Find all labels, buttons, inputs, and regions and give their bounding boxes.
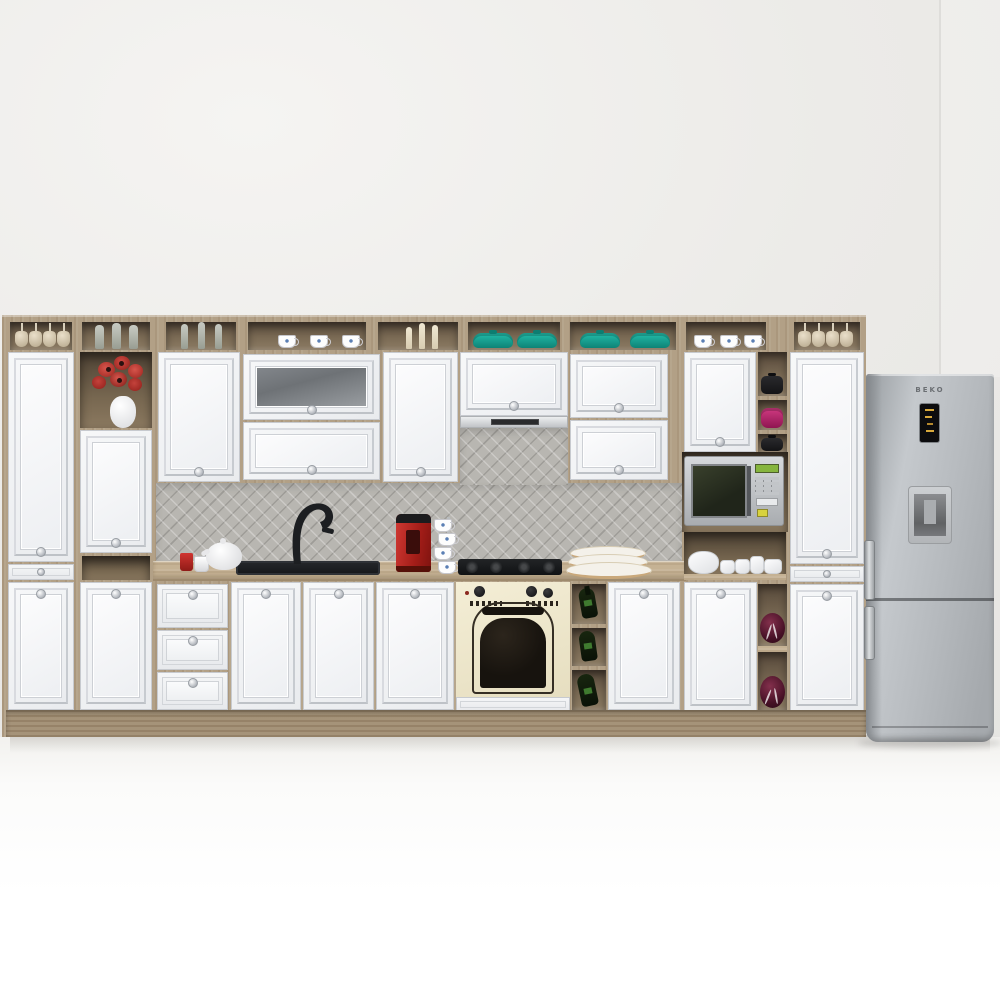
door-knob xyxy=(334,589,344,599)
door-knob xyxy=(822,549,832,559)
upper-cabinet-door xyxy=(684,352,756,452)
oven-indicator xyxy=(465,591,469,595)
drawer-front xyxy=(8,564,74,580)
drawer-knob xyxy=(823,570,831,578)
faucet xyxy=(284,498,340,566)
black-pot-icon xyxy=(761,376,783,394)
wine-glass-icon xyxy=(840,323,853,347)
drawer-knob xyxy=(188,678,198,688)
microwave-door-window xyxy=(691,464,747,518)
door-knob xyxy=(111,538,121,548)
floor-shadow xyxy=(10,735,990,753)
wine-cubby xyxy=(572,584,606,624)
oven-door-glass xyxy=(480,618,546,688)
upper-cabinet-door xyxy=(158,352,240,482)
teal-pot-icon xyxy=(517,333,557,348)
base-cabinet-door xyxy=(790,584,864,712)
door-knob xyxy=(822,591,832,601)
sugar-bowl-icon xyxy=(720,560,735,574)
fridge-display xyxy=(920,404,939,442)
candle-icon xyxy=(406,327,412,349)
magenta-pot-icon xyxy=(761,408,783,428)
kitchen-render: BEKO xyxy=(0,0,1000,1000)
freezer-handle xyxy=(864,606,875,660)
door-knob xyxy=(639,589,649,599)
niche-shelf-board xyxy=(684,574,786,580)
teapot-icon xyxy=(688,551,719,574)
oven-knob xyxy=(526,586,537,597)
teal-pot-icon xyxy=(473,333,513,348)
door-knob xyxy=(194,467,204,477)
shelf-box-candles xyxy=(378,322,458,350)
door-knob xyxy=(715,437,725,447)
wine-glass-icon xyxy=(29,323,42,347)
milk-jug-icon xyxy=(750,556,764,574)
base-cabinet-door xyxy=(8,582,74,710)
tea-set-niche xyxy=(684,532,786,580)
drawer-front xyxy=(157,672,228,710)
champagne-flute-icon xyxy=(198,322,205,349)
plate-stack xyxy=(566,544,650,576)
wine-glass-icon xyxy=(57,323,70,347)
open-shelf-pot xyxy=(758,400,787,430)
toe-kick xyxy=(6,710,866,737)
glass-tumbler-icon xyxy=(112,323,121,349)
upper-flip-door xyxy=(570,354,668,418)
floor xyxy=(0,737,1000,1000)
ornament-shelf xyxy=(758,584,787,646)
ornament-shelf xyxy=(758,652,787,710)
fridge-bottom-line xyxy=(872,726,988,728)
wine-glass-icon xyxy=(826,323,839,347)
door-knob xyxy=(36,547,46,557)
microwave-display xyxy=(755,464,779,473)
black-pot-icon xyxy=(761,438,783,451)
shelf-box-hanging-glasses-left xyxy=(10,322,72,350)
tea-cup-icon xyxy=(720,335,738,348)
microwave-niche xyxy=(682,452,788,532)
open-shelf-pot xyxy=(758,434,787,452)
gas-hob xyxy=(458,559,562,575)
tea-cup-icon xyxy=(764,559,782,574)
base-cabinet-door xyxy=(231,582,301,710)
fridge-freezer-split xyxy=(866,598,994,601)
wine-glass-icon xyxy=(798,323,811,347)
fridge-brand-logo: BEKO xyxy=(866,386,994,394)
hob-upper-flip-door xyxy=(460,352,568,416)
drawer-front xyxy=(157,630,228,670)
base-cabinet-door xyxy=(608,582,680,710)
microwave xyxy=(684,456,784,526)
sugar-bowl-icon xyxy=(735,559,750,574)
flower-niche xyxy=(80,352,152,428)
champagne-flute-icon xyxy=(215,324,222,349)
door-knob xyxy=(410,589,420,599)
teal-pot-icon xyxy=(630,333,670,348)
drawer-knob xyxy=(188,590,198,600)
tall-cabinet-door xyxy=(790,352,864,564)
oven-door-handle xyxy=(482,607,544,615)
door-knob xyxy=(307,465,317,475)
base-cabinet-door xyxy=(684,582,757,712)
shelf-box-flutes xyxy=(166,322,236,350)
fridge: BEKO xyxy=(866,374,994,742)
door-knob xyxy=(36,589,46,599)
coffee-machine xyxy=(396,514,431,572)
stacked-cup xyxy=(434,519,452,532)
fridge-handle xyxy=(864,540,875,600)
teapot xyxy=(206,542,242,570)
wine-cubby xyxy=(572,628,606,666)
upper-flip-door xyxy=(570,420,668,480)
door-knob xyxy=(614,403,624,413)
glass-tumbler-icon xyxy=(129,325,138,349)
wine-glass-icon xyxy=(812,323,825,347)
base-cabinet-door xyxy=(303,582,374,710)
wine-glass-icon xyxy=(43,323,56,347)
wine-rack xyxy=(572,582,606,712)
shelf-box-teal-pots-2 xyxy=(570,322,676,350)
base-cabinet-door xyxy=(80,582,152,710)
door-knob xyxy=(716,589,726,599)
open-shelf-pot xyxy=(758,352,787,396)
shelf-box-tumblers xyxy=(82,322,150,350)
drawer-knob xyxy=(188,636,198,646)
shelf-box-teacups-left xyxy=(248,322,366,350)
stacked-cup xyxy=(434,547,452,560)
water-dispenser xyxy=(908,486,952,544)
upper-cabinet-door xyxy=(383,352,458,482)
champagne-flute-icon xyxy=(181,324,188,349)
wine-cubby xyxy=(572,670,606,710)
drawer-front xyxy=(157,584,228,628)
door-knob xyxy=(509,401,519,411)
tall-cabinet-door xyxy=(8,352,74,562)
range-hood xyxy=(460,416,568,428)
wall-corner-right xyxy=(941,0,1000,377)
drawer-front xyxy=(790,566,864,582)
stacked-cup xyxy=(438,533,456,546)
door-knob xyxy=(307,405,317,415)
tea-cup-icon xyxy=(694,335,712,348)
oven-knob xyxy=(543,588,553,598)
open-slot xyxy=(82,556,150,580)
microwave-start-button xyxy=(757,509,768,517)
tea-cup-icon xyxy=(310,335,328,348)
oven xyxy=(456,582,570,712)
microwave-keypad xyxy=(755,477,779,495)
tea-cup-icon xyxy=(744,335,762,348)
teal-pot-icon xyxy=(580,333,620,348)
microwave-button xyxy=(756,498,778,506)
wine-glass-icon xyxy=(15,323,28,347)
door-knob xyxy=(261,589,271,599)
candle-icon xyxy=(419,323,425,349)
fridge-floor-shadow xyxy=(858,738,1000,748)
door-knob xyxy=(111,589,121,599)
poppy-bouquet xyxy=(88,354,148,402)
drawer-knob xyxy=(37,568,45,576)
base-cabinet-door xyxy=(376,582,454,710)
red-mug xyxy=(180,553,193,571)
hood-control-panel xyxy=(491,419,539,425)
dispenser-paddle xyxy=(924,500,936,524)
glass-tumbler-icon xyxy=(95,325,104,349)
backsplash-tile-hob-recess xyxy=(460,428,568,485)
tea-cup-icon xyxy=(278,335,296,348)
tea-cup-icon xyxy=(342,335,360,348)
oven-knob xyxy=(474,586,485,597)
upper-flip-door xyxy=(243,422,380,480)
shelf-box-teal-pots-1 xyxy=(468,322,560,350)
mid-cabinet-door xyxy=(80,430,152,553)
shelf-box-teacups-right xyxy=(686,322,766,350)
door-knob xyxy=(416,467,426,477)
stacked-cup xyxy=(438,561,456,574)
shelf-box-hanging-glasses-right xyxy=(794,322,860,350)
door-knob xyxy=(614,465,624,475)
candle-icon xyxy=(432,325,438,349)
upper-glass-flip-door xyxy=(243,354,380,420)
